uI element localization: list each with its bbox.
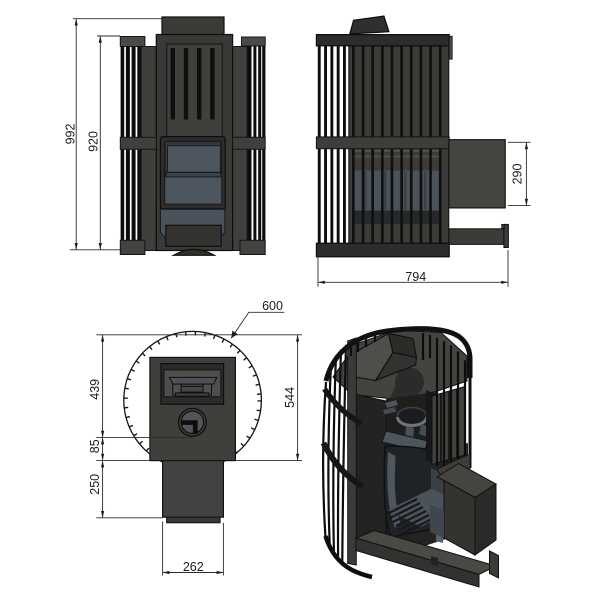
svg-text:290: 290 bbox=[511, 164, 525, 185]
svg-text:992: 992 bbox=[64, 124, 78, 145]
svg-text:250: 250 bbox=[88, 474, 102, 495]
svg-text:262: 262 bbox=[183, 560, 204, 574]
svg-text:85: 85 bbox=[88, 439, 102, 453]
svg-text:439: 439 bbox=[88, 379, 102, 400]
svg-text:920: 920 bbox=[87, 131, 101, 152]
svg-text:600: 600 bbox=[262, 299, 283, 313]
svg-text:544: 544 bbox=[283, 387, 297, 408]
svg-text:794: 794 bbox=[405, 270, 426, 284]
